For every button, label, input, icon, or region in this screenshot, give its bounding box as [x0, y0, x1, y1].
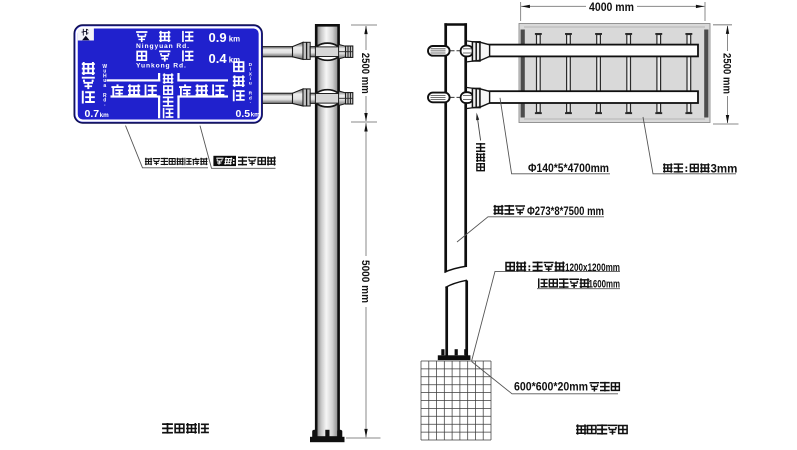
svg-text:Φ273*8*7500 mm: Φ273*8*7500 mm — [527, 206, 604, 218]
svg-text:km: km — [100, 112, 110, 119]
svg-text:Ningyuan Rd.: Ningyuan Rd. — [136, 43, 190, 50]
svg-text:u: u — [249, 82, 252, 87]
svg-text:2500 mm: 2500 mm — [359, 53, 371, 94]
svg-text:2500 mm: 2500 mm — [720, 53, 732, 94]
svg-text:5000 mm: 5000 mm — [359, 260, 371, 303]
svg-text:.: . — [250, 100, 251, 105]
svg-text:1200x1200mm: 1200x1200mm — [565, 262, 620, 274]
svg-text:4000 mm: 4000 mm — [589, 0, 634, 14]
svg-text:0.4: 0.4 — [209, 51, 228, 66]
svg-text:0.5: 0.5 — [236, 108, 251, 120]
svg-text:3mm: 3mm — [711, 163, 738, 175]
svg-text:600*600*20mm: 600*600*20mm — [514, 382, 588, 394]
svg-text:km: km — [251, 112, 261, 119]
svg-text:Φ140*5*4700mm: Φ140*5*4700mm — [528, 163, 609, 175]
svg-text:a: a — [103, 83, 106, 89]
svg-text:Yunkong Rd.: Yunkong Rd. — [136, 63, 187, 70]
svg-text:0.9: 0.9 — [209, 30, 227, 45]
svg-text:0.7: 0.7 — [85, 108, 100, 120]
svg-text:km: km — [229, 35, 240, 44]
